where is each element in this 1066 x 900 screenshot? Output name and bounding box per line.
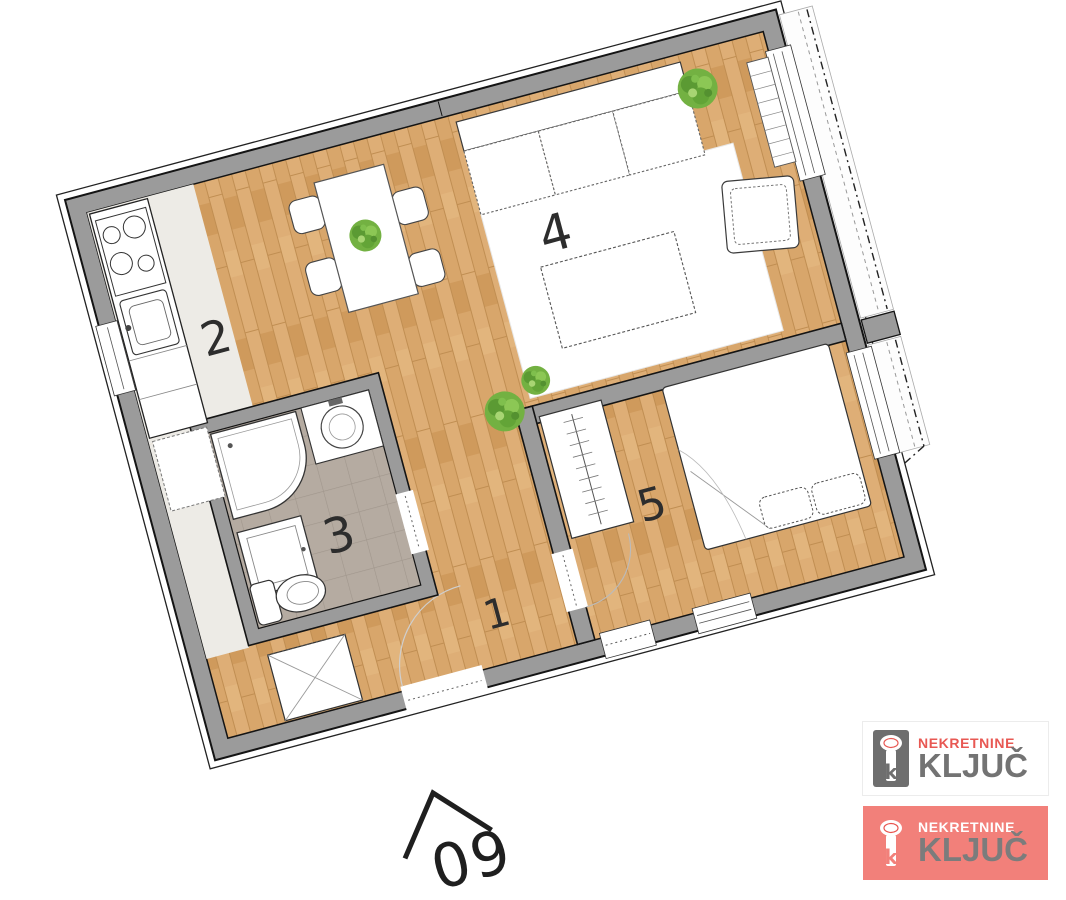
brand-text: NEKRETNINE KLJUČ xyxy=(918,820,1028,866)
svg-text:k: k xyxy=(884,760,898,784)
floor-plan-page: 1 2 3 4 5 09 k NEKRETNINE KLJUČ k NEKRET… xyxy=(0,0,1066,900)
brand-line2: KLJUČ xyxy=(918,749,1028,782)
brand-text: NEKRETNINE KLJUČ xyxy=(918,736,1028,782)
brand-line2: KLJUČ xyxy=(918,833,1028,866)
key-icon: k xyxy=(873,730,909,787)
unit-label: 09 xyxy=(424,816,520,900)
brand-badge-red: k NEKRETNINE KLJUČ xyxy=(863,806,1048,880)
brand-badge-light: k NEKRETNINE KLJUČ xyxy=(862,721,1049,796)
key-icon: k xyxy=(873,815,909,872)
armchair xyxy=(721,175,799,253)
unit-marker: 09 xyxy=(391,777,520,900)
svg-text:k: k xyxy=(884,845,898,869)
